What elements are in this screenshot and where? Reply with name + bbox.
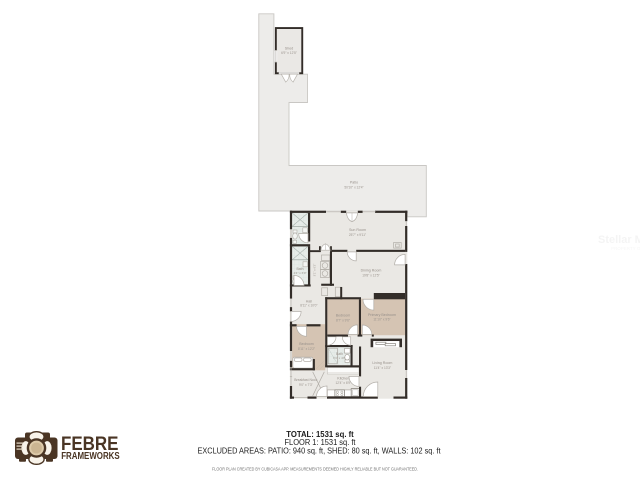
svg-text:11'4" x 13'3": 11'4" x 13'3"	[374, 366, 391, 370]
svg-text:Patio: Patio	[350, 181, 358, 185]
svg-text:8'11" x 12'2": 8'11" x 12'2"	[298, 347, 315, 351]
svg-text:FRAMEWORKS: FRAMEWORKS	[61, 451, 120, 462]
svg-text:Dining Room: Dining Room	[361, 269, 382, 273]
svg-text:25'7" x 9'11": 25'7" x 9'11"	[349, 233, 366, 237]
svg-text:PROPERTY OF MLS: PROPERTY OF MLS	[611, 246, 640, 251]
svg-text:Bedroom: Bedroom	[299, 342, 314, 346]
svg-text:Kitchen: Kitchen	[337, 376, 349, 380]
svg-text:8'11" x 10'0": 8'11" x 10'0"	[300, 304, 317, 308]
svg-text:Sun Room: Sun Room	[349, 228, 366, 232]
svg-text:4'4" x 6'9": 4'4" x 6'9"	[293, 271, 306, 275]
svg-text:Bedroom: Bedroom	[336, 314, 351, 318]
svg-text:Shed: Shed	[285, 46, 293, 50]
svg-text:FLOOR PLAN CREATED BY CUBICASA: FLOOR PLAN CREATED BY CUBICASA APP. MEAS…	[212, 467, 418, 472]
svg-text:19'8" x 12'5": 19'8" x 12'5"	[362, 273, 379, 277]
svg-text:Stellar MLS: Stellar MLS	[598, 234, 640, 246]
svg-text:3'1" x 6'2": 3'1" x 6'2"	[313, 264, 317, 277]
svg-text:9'0" x 7'3": 9'0" x 7'3"	[299, 383, 313, 387]
svg-text:11'10" x 9'6": 11'10" x 9'6"	[373, 318, 390, 322]
svg-text:50'10" x 12'4": 50'10" x 12'4"	[344, 185, 363, 189]
svg-text:8'7" x 9'6": 8'7" x 9'6"	[336, 318, 350, 322]
svg-text:12'4" x 6'9": 12'4" x 6'9"	[335, 381, 351, 385]
svg-text:Primary Bedroom: Primary Bedroom	[368, 313, 396, 317]
svg-text:Breakfast Nook: Breakfast Nook	[294, 378, 317, 382]
svg-text:Living Room: Living Room	[372, 361, 392, 365]
svg-text:EXCLUDED AREAS: PATIO: 940 sq.: EXCLUDED AREAS: PATIO: 940 sq. ft, SHED:…	[198, 446, 442, 455]
svg-text:6'9" x 12'5": 6'9" x 12'5"	[281, 51, 297, 55]
